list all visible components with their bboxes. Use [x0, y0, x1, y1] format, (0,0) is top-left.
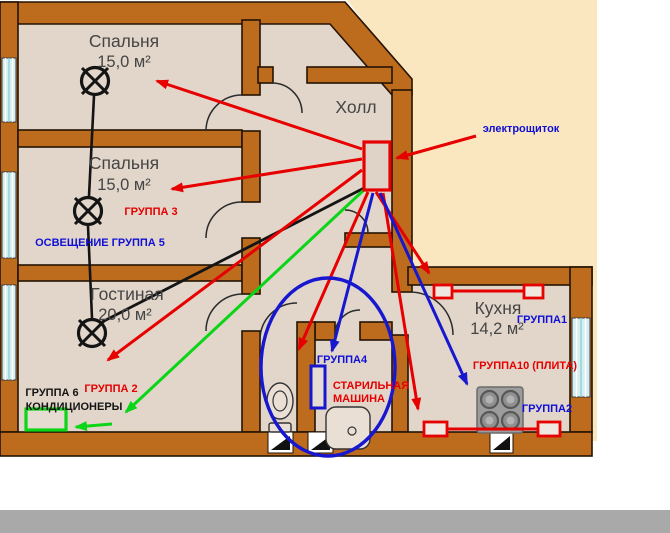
label-washer-line2: МАШИНА [333, 393, 385, 405]
toilet-icon [267, 383, 293, 432]
wall-hall-top [307, 67, 392, 83]
wall-bath-top [315, 322, 335, 340]
bedroom1-area: 15,0 м² [97, 53, 151, 71]
label-group2-kitchen: ГРУППА2 [522, 403, 572, 415]
bedroom2-name: Спальня [89, 153, 159, 173]
window [2, 172, 16, 258]
label-group3: ГРУППА 3 [124, 206, 177, 218]
wall-hall-corridor [345, 233, 392, 247]
label-group10: ГРУППА10 (ПЛИТА) [473, 360, 577, 372]
label-conditioners: КОНДИЦИОНЕРЫ [26, 401, 123, 413]
label-group4: ГРУППА4 [317, 354, 368, 366]
floor-plan-svg: Спальня 15,0 м² Спальня 15,0 м² Гостиная… [0, 0, 670, 533]
bottom-gray-bar [0, 510, 670, 533]
label-lighting-group5: ОСВЕЩЕНИЕ ГРУППА 5 [35, 237, 165, 249]
wall-kitchen-top [408, 267, 592, 285]
label-group6: ГРУППА 6 [25, 387, 78, 399]
wall-entry-stub [258, 67, 273, 83]
window-kitchen [572, 318, 590, 397]
hall-name: Холл [335, 97, 376, 117]
wall-inner-vertical [242, 131, 260, 202]
label-washer-line1: СТАРИЛЬНАЯ [333, 380, 409, 392]
socket-icon-kitchen-bottom-left [424, 422, 447, 436]
socket-icon-kitchen-top-right [524, 285, 543, 298]
floor-plan-diagram: Спальня 15,0 м² Спальня 15,0 м² Гостиная… [0, 0, 670, 533]
vent-icon [268, 432, 293, 453]
living-name: Гостиная [90, 284, 163, 304]
stove-icon [477, 387, 523, 433]
wall-bedroom-divider [18, 130, 242, 147]
label-group1: ГРУППА1 [517, 314, 567, 326]
socket-icon-kitchen-bottom-right [538, 422, 560, 436]
label-panel: электрощиток [483, 123, 560, 135]
vent-icon [490, 432, 513, 453]
kitchen-name: Кухня [475, 298, 522, 318]
window [2, 58, 16, 122]
bedroom2-area: 15,0 м² [97, 176, 151, 194]
label-group2: ГРУППА 2 [84, 383, 137, 395]
living-area: 20,0 м² [98, 306, 152, 324]
washing-machine-socket [311, 366, 325, 408]
wall-inner-vertical [242, 331, 260, 432]
socket-icon-kitchen-top-left [434, 285, 452, 298]
window [2, 285, 16, 380]
electrical-panel [364, 142, 390, 190]
bedroom1-name: Спальня [89, 31, 159, 51]
